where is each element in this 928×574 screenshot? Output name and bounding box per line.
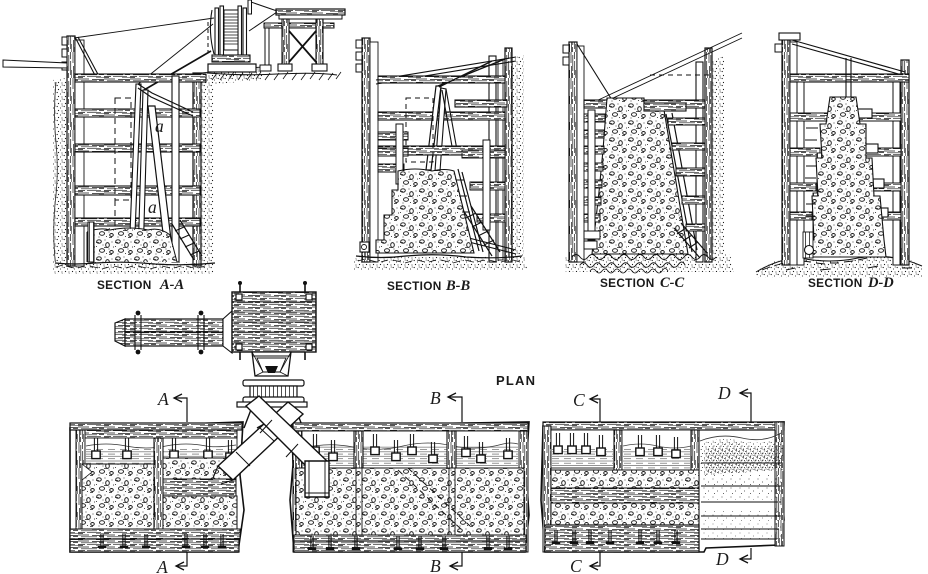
svg-text:SECTION: SECTION — [600, 276, 655, 290]
svg-text:C: C — [570, 556, 582, 574]
svg-text:D-D: D-D — [867, 275, 894, 291]
svg-text:D: D — [715, 549, 729, 569]
svg-text:B: B — [430, 556, 441, 574]
svg-text:B-B: B-B — [445, 278, 471, 294]
svg-text:a: a — [148, 197, 157, 217]
svg-text:A: A — [156, 557, 168, 574]
svg-text:A-A: A-A — [159, 277, 185, 293]
svg-text:a: a — [155, 116, 164, 136]
svg-text:D: D — [717, 383, 731, 403]
svg-text:SECTION: SECTION — [808, 276, 863, 290]
svg-text:SECTION: SECTION — [97, 278, 152, 292]
svg-text:C: C — [573, 390, 585, 410]
svg-text:PLAN: PLAN — [496, 373, 536, 388]
svg-text:B: B — [430, 388, 441, 408]
svg-text:SECTION: SECTION — [387, 279, 442, 293]
svg-text:C-C: C-C — [660, 275, 685, 291]
svg-text:A: A — [157, 389, 169, 409]
